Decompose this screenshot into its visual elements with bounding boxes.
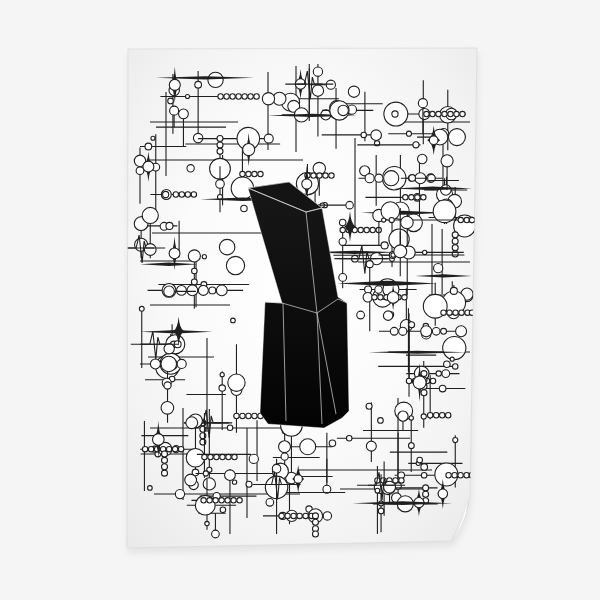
pattern-circle [378,508,384,514]
pattern-circle [450,287,457,294]
bead-dot [213,498,218,503]
bead-dot [218,94,223,99]
pattern-circle [168,98,174,104]
chain-circle [384,171,399,186]
bead-dot [460,111,465,116]
stem-circle [418,99,427,108]
sparkle-circle [143,161,154,172]
bead-dot [148,446,153,451]
pattern-circle [227,425,232,430]
pattern-circle [346,436,352,442]
bead-dot [142,446,147,451]
bead-dot [329,173,334,178]
bead-dot [252,413,257,418]
pattern-circle [232,480,236,484]
bead-dot [297,513,302,518]
pattern-circle [266,499,274,507]
pattern-circle [421,414,426,419]
bead-dot [246,171,251,176]
bead-dot [173,192,178,197]
bead-dot [423,491,429,497]
sparkle-circle [169,79,180,90]
pattern-circle [366,261,373,268]
bead-dot [201,498,206,503]
bead-dot [237,498,242,503]
bead-dot [234,413,239,418]
pattern-circle [381,242,388,249]
pattern-circle [423,250,427,254]
bead-dot [452,238,458,244]
pattern-circle [185,474,197,486]
chain-circle [421,326,432,337]
bead-dot [424,111,429,116]
pattern-circle [389,217,394,222]
chain-circle [441,328,447,334]
bead-dot [207,498,212,503]
stem-circle [272,465,280,473]
bead-dot [312,519,318,525]
chain-circle [456,326,467,337]
pattern-circle [192,268,198,274]
sparkle-circle [243,143,255,155]
bead-dot [433,413,438,418]
chain-circle [150,359,160,369]
bead-dot [236,94,241,99]
pattern-circle [188,250,200,262]
bead-dot [179,192,184,197]
bead-dot [232,454,237,459]
pattern-circle [361,132,366,137]
bead-dot [421,371,427,377]
pattern-circle [163,191,169,197]
bead-dot [436,111,441,116]
bead-dot [409,195,414,200]
pattern-circle [371,130,382,141]
bead-dot [469,217,474,222]
pattern-circle [264,134,273,143]
bead-dot [442,111,447,116]
pattern-circle [281,453,288,460]
bead-dot [248,94,253,99]
pattern-circle [338,105,348,115]
pattern-circle [339,238,346,245]
sparkle-circle [294,475,302,483]
bead-dot [454,111,459,116]
sparkle-circle [387,292,399,304]
bead-dot [178,446,183,451]
bead-dot [402,295,407,300]
bead-dot [285,513,290,518]
pattern-circle [186,417,198,429]
pattern-circle [441,185,452,196]
bead-dot [185,192,190,197]
stem-circle [398,411,408,421]
chain-circle [442,370,450,378]
bead-dot [279,513,284,518]
stem-circle [164,286,175,297]
pattern-circle [185,94,189,98]
bead-dot [464,473,469,478]
pattern-circle [375,488,380,493]
bead-dot [162,464,168,470]
bead-dot [254,94,259,99]
bead-dot [312,531,318,537]
pattern-circle [392,111,398,117]
bead-dot [162,457,168,463]
bead-dot [459,310,464,315]
bead-dot [421,390,427,396]
sparkle-circle [153,434,165,446]
pattern-circle [195,81,202,88]
pattern-circle [166,222,173,229]
bead-dot [447,310,452,315]
pattern-circle [219,385,225,391]
bead-dot [430,111,435,116]
bead-dot [458,217,463,222]
pattern-circle [366,403,372,409]
pattern-circle [339,273,347,281]
pattern-circle [139,306,144,311]
pattern-circle [436,371,441,376]
pattern-circle [205,521,209,525]
bead-dot [427,413,432,418]
pattern-circle [203,471,208,476]
bead-dot [219,498,224,503]
mockup-svg [0,0,600,600]
chain-circle [177,285,187,295]
pattern-circle [439,385,446,392]
pattern-circle [208,72,223,87]
pattern-circle [421,464,428,471]
bead-dot [323,173,328,178]
bead-dot [242,94,247,99]
pattern-circle [313,67,322,76]
pattern-circle [363,293,373,303]
bead-dot [439,413,444,418]
pattern-circle [187,165,194,172]
bead-dot [453,310,458,315]
stem-circle [216,180,225,189]
bead-dot [317,173,322,178]
pattern-circle [246,481,252,487]
bead-dot [246,413,251,418]
bead-dot [225,498,230,503]
pattern-circle [231,318,236,323]
bead-dot [217,148,223,154]
bead-dot [230,94,235,99]
bead-dot [372,295,377,300]
pattern-circle [312,85,323,96]
pattern-circle [409,175,416,182]
bead-dot [358,227,363,232]
chain-circle [187,285,198,296]
bead-dot [214,454,219,459]
pattern-circle [433,200,456,223]
bead-dot [312,513,318,519]
sparkle-circle [429,136,438,145]
pattern-circle [191,279,197,285]
bead-dot [258,171,263,176]
pattern-circle [148,486,153,491]
bead-dot [340,227,345,232]
pattern-circle [220,507,226,513]
bead-dot [231,498,236,503]
chain-circle [161,356,177,372]
bead-dot [291,513,296,518]
chain-circle [209,287,216,294]
chain-circle [198,285,208,295]
chain-circle [432,327,440,335]
bead-dot [370,227,375,232]
pattern-circle [219,239,235,255]
bead-dot [220,454,225,459]
pattern-circle [453,438,458,443]
bead-dot [217,142,223,148]
pattern-circle [164,382,171,389]
bead-dot [452,232,458,238]
pattern-circle [366,441,376,451]
stem-circle [394,245,407,258]
pattern-circle [413,142,419,148]
sparkle-circle [302,179,312,189]
pattern-circle [339,219,346,226]
pattern-circle [357,311,365,319]
bead-dot [452,245,458,251]
pattern-circle [300,439,316,455]
bead-dot [415,195,420,200]
bead-dot [240,171,245,176]
bead-dot [423,485,429,491]
bead-dot [166,446,171,451]
bead-dot [252,171,257,176]
pattern-circle [450,357,454,361]
bead-dot [226,454,231,459]
chain-circle [177,359,186,368]
pattern-circle [175,489,184,498]
pattern-circle [434,264,443,273]
pattern-circle [444,361,451,368]
pattern-circle [202,255,206,259]
bead-dot [162,470,168,476]
sparkle-circle [413,376,426,389]
pattern-circle [443,336,466,359]
pattern-circle [241,205,247,211]
chain-circle [323,512,331,520]
chain-circle [448,129,465,146]
bead-dot [378,295,383,300]
stem-circle [441,155,453,167]
stem-circle [170,106,179,115]
pattern-circle [421,472,427,478]
pattern-circle [164,344,174,354]
pattern-circle [378,418,384,424]
chain-circle [399,327,407,335]
chain-circle [216,285,227,296]
sparkle-circle [169,248,180,259]
bead-dot [421,195,426,200]
pattern-circle [452,364,457,369]
poster-mockup-scene [0,0,600,600]
pattern-circle [383,311,392,320]
pattern-circle [226,256,244,274]
bead-dot [458,473,463,478]
pattern-circle [228,374,245,391]
pattern-circle [249,454,258,463]
chain-circle [375,174,383,182]
bead-dot [224,94,229,99]
pattern-circle [193,133,202,142]
bead-dot [399,478,404,483]
stem-circle [346,201,353,208]
pattern-circle [142,207,158,223]
bead-dot [441,310,446,315]
sparkle-circle [438,489,447,498]
bead-dot [469,473,474,478]
stem-circle [326,80,335,89]
bead-dot [452,473,457,478]
pattern-circle [409,416,413,420]
pattern-circle [417,457,423,463]
bead-dot [364,227,369,232]
pattern-circle [365,286,372,293]
bead-dot [162,451,168,457]
pattern-circle [409,443,415,449]
bead-dot [303,513,308,518]
stem-circle [179,109,189,119]
chain-circle [375,286,382,293]
pattern-circle [348,86,359,97]
pattern-circle [409,322,415,328]
bead-dot [311,173,316,178]
bead-dot [240,413,245,418]
pattern-circle [262,93,274,105]
pattern-circle [203,478,215,490]
pattern-circle [225,470,236,481]
bead-dot [172,446,177,451]
stem-circle [212,530,220,538]
pattern-circle [220,373,224,377]
pattern-circle [329,440,335,446]
pattern-circle [406,131,411,136]
pattern-circle [161,401,174,414]
bead-dot [446,473,451,478]
bead-dot [406,378,411,383]
bead-dot [191,192,196,197]
bead-dot [448,111,453,116]
bead-dot [202,454,207,459]
chain-circle [390,327,398,335]
pattern-circle [401,216,414,229]
bead-dot [445,413,450,418]
pattern-circle [151,136,155,140]
bead-dot [208,454,213,459]
bead-dot [430,378,435,383]
pattern-circle [145,143,152,150]
bead-dot [464,217,469,222]
bead-dot [403,195,408,200]
bead-dot [217,136,223,142]
pattern-circle [279,441,291,453]
pattern-circle [418,154,427,163]
chain-circle [365,174,374,183]
pattern-circle [144,244,156,256]
